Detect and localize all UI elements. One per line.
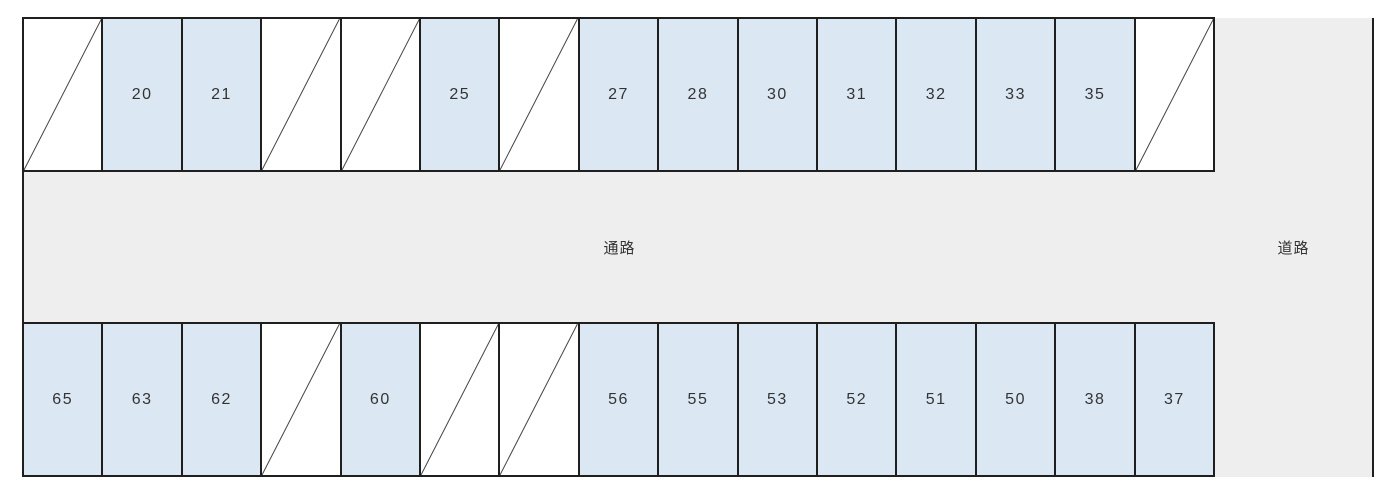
space-number: 51 [897,324,974,475]
parking-space-28: 28 [657,19,736,170]
space-number: 53 [739,324,816,475]
parking-space-55: 55 [657,324,736,475]
parking-space-65: 65 [24,324,101,475]
diagonal-line-icon [421,324,498,475]
parking-space-51: 51 [895,324,974,475]
parking-space-62: 62 [181,324,260,475]
parking-space-crossed [419,324,498,475]
space-number: 32 [897,19,974,170]
space-number: 55 [659,324,736,475]
space-number: 30 [739,19,816,170]
parking-lot-diagram: 20212527283031323335 通路 6563626056555352… [0,0,1387,489]
parking-space-20: 20 [101,19,180,170]
parking-space-27: 27 [578,19,657,170]
space-number: 37 [1136,324,1213,475]
space-number: 60 [342,324,419,475]
space-number: 21 [183,19,260,170]
aisle-area: 通路 [22,172,1215,322]
parking-space-56: 56 [578,324,657,475]
space-number: 20 [103,19,180,170]
parking-space-31: 31 [816,19,895,170]
parking-space-crossed [340,19,419,170]
space-number: 62 [183,324,260,475]
parking-space-32: 32 [895,19,974,170]
parking-row-top: 20212527283031323335 [22,17,1215,172]
parking-space-53: 53 [737,324,816,475]
space-number: 65 [24,324,101,475]
parking-space-37: 37 [1134,324,1213,475]
parking-space-33: 33 [975,19,1054,170]
road-label: 道路 [1277,237,1309,258]
parking-space-crossed [498,19,577,170]
parking-space-35: 35 [1054,19,1133,170]
space-number: 28 [659,19,736,170]
parking-space-21: 21 [181,19,260,170]
parking-space-52: 52 [816,324,895,475]
parking-space-crossed [1134,19,1213,170]
parking-space-63: 63 [101,324,180,475]
diagonal-line-icon [262,19,339,170]
parking-space-crossed [24,19,101,170]
parking-space-50: 50 [975,324,1054,475]
parking-row-bottom: 656362605655535251503837 [22,322,1215,477]
diagonal-line-icon [1136,19,1213,170]
space-number: 52 [818,324,895,475]
parking-space-38: 38 [1054,324,1133,475]
diagonal-line-icon [24,19,101,170]
parking-space-crossed [498,324,577,475]
diagonal-line-icon [500,324,577,475]
space-number: 63 [103,324,180,475]
space-number: 31 [818,19,895,170]
space-number: 35 [1056,19,1133,170]
space-number: 33 [977,19,1054,170]
parking-space-60: 60 [340,324,419,475]
parking-space-crossed [260,324,339,475]
space-number: 56 [580,324,657,475]
diagonal-line-icon [342,19,419,170]
aisle-label: 通路 [603,237,635,258]
parking-space-30: 30 [737,19,816,170]
space-number: 38 [1056,324,1133,475]
parking-space-crossed [260,19,339,170]
diagonal-line-icon [500,19,577,170]
diagonal-line-icon [262,324,339,475]
space-number: 50 [977,324,1054,475]
parking-space-25: 25 [419,19,498,170]
road-area: 道路 [1215,18,1374,477]
space-number: 25 [421,19,498,170]
space-number: 27 [580,19,657,170]
